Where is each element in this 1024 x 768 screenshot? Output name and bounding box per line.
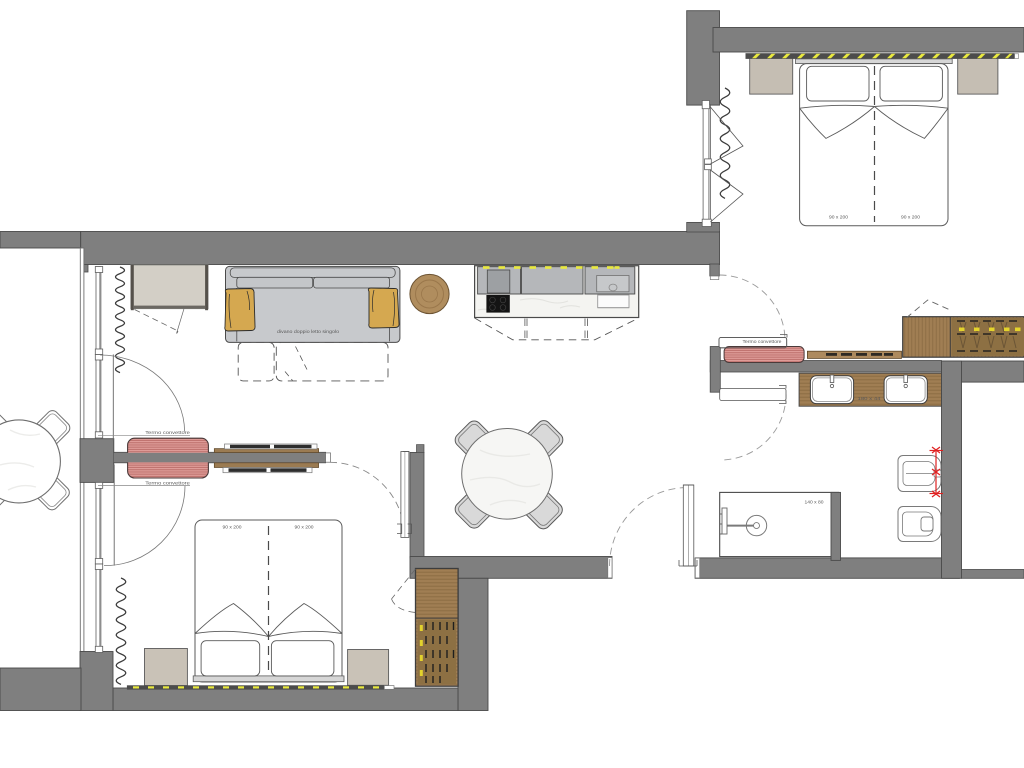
svg-text:140 x 80: 140 x 80	[805, 500, 825, 505]
svg-text:90 x 200: 90 x 200	[829, 215, 848, 220]
svg-text:180 x 44: 180 x 44	[858, 396, 882, 401]
svg-text:90 x 200: 90 x 200	[901, 215, 920, 220]
svg-text:Termo convettore: Termo convettore	[145, 430, 190, 435]
svg-text:divano doppio letto singolo: divano doppio letto singolo	[277, 329, 340, 334]
svg-text:Termo convettore: Termo convettore	[145, 481, 190, 486]
svg-text:90 x 200: 90 x 200	[295, 525, 314, 530]
svg-text:Termo convettore: Termo convettore	[743, 339, 783, 344]
svg-text:90 x 200: 90 x 200	[223, 525, 242, 530]
